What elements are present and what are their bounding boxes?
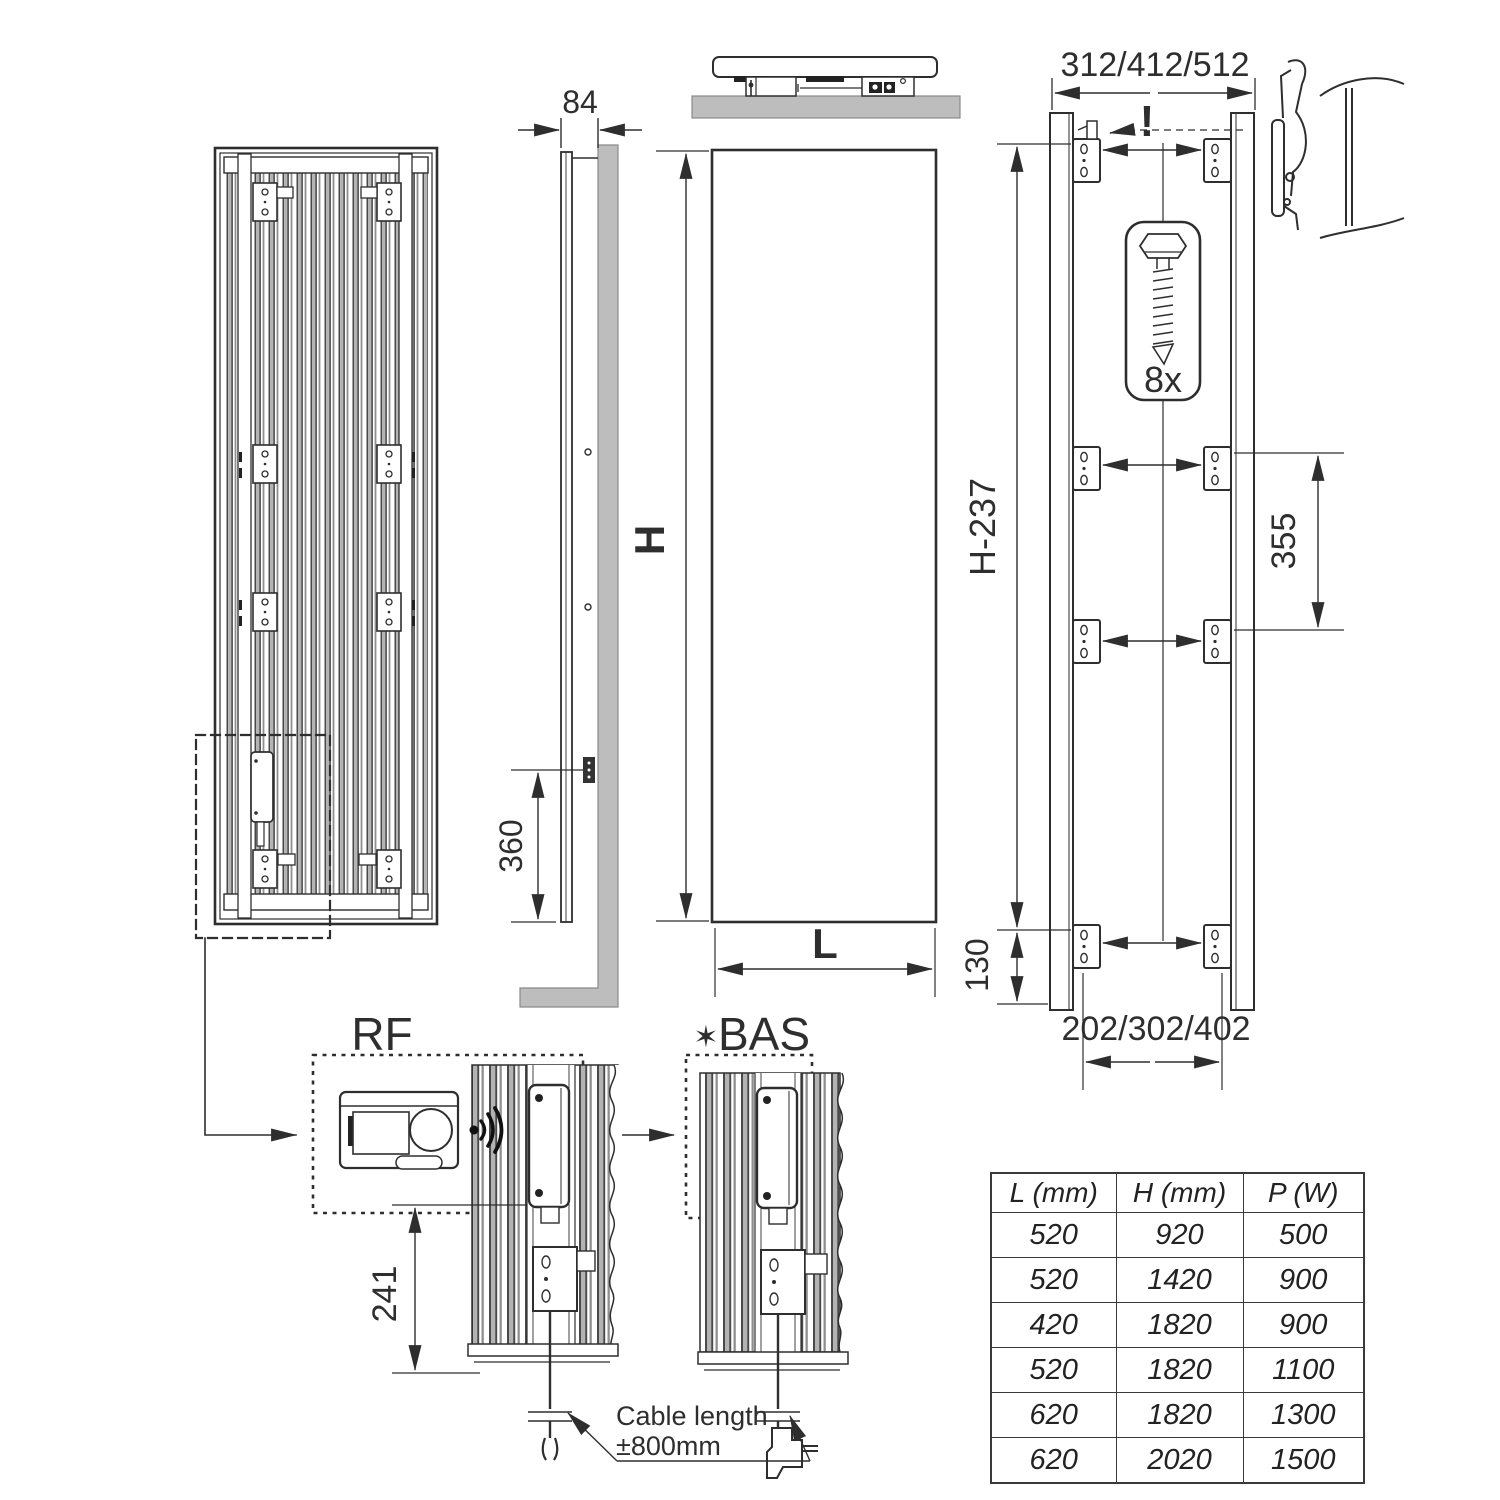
top-plan-view xyxy=(692,57,960,118)
dim-241-label: 241 xyxy=(366,1266,404,1323)
dim-length-label: L xyxy=(812,920,838,967)
cell-h: 2020 xyxy=(1116,1438,1243,1484)
cell-l: 420 xyxy=(991,1303,1116,1348)
dim-H: H xyxy=(626,151,709,921)
dim-inlet-height-label: 360 xyxy=(493,819,529,872)
dim-h237-label: H-237 xyxy=(962,478,1003,576)
cell-l: 520 xyxy=(991,1348,1116,1393)
cell-h: 1820 xyxy=(1116,1303,1243,1348)
table-row: 620 2020 1500 xyxy=(991,1438,1364,1484)
dim-355-label: 355 xyxy=(1265,513,1303,570)
warning-exclamation: ! xyxy=(1140,97,1155,146)
cell-p: 900 xyxy=(1243,1258,1364,1303)
panel-outline-view: H L xyxy=(626,150,936,997)
cell-h: 920 xyxy=(1116,1213,1243,1258)
cable-note-line1: Cable length xyxy=(616,1401,768,1431)
radiator-rear-view xyxy=(196,148,437,1135)
table-row: 420 1820 900 xyxy=(991,1303,1364,1348)
bas-label: BAS xyxy=(718,1008,810,1060)
col-header-length: L (mm) xyxy=(991,1173,1116,1213)
screw-badge: 8x xyxy=(1126,222,1200,400)
cell-p: 1500 xyxy=(1243,1438,1364,1484)
cell-p: 1100 xyxy=(1243,1348,1364,1393)
dim-depth-label: 84 xyxy=(562,84,598,120)
side-view: 84 360 xyxy=(493,84,642,1007)
dim-bottom-span-label: 202/302/402 xyxy=(1061,1010,1250,1048)
dim-130: 130 xyxy=(959,933,1048,1004)
cell-p: 500 xyxy=(1243,1213,1364,1258)
thermostat-display xyxy=(353,1112,409,1154)
dim-130-label: 130 xyxy=(959,938,995,991)
dim-height-label: H xyxy=(626,525,673,555)
cell-h: 1820 xyxy=(1116,1348,1243,1393)
col-header-height: H (mm) xyxy=(1116,1173,1243,1213)
screw-count-label: 8x xyxy=(1144,359,1182,400)
size-table-header-row: L (mm) H (mm) P (W) xyxy=(991,1173,1364,1213)
dim-84: 84 xyxy=(518,84,642,148)
table-row: 520 1420 900 xyxy=(991,1258,1364,1303)
dim-top-span-label: 312/412/512 xyxy=(1060,46,1249,84)
dim-L: L xyxy=(715,920,935,997)
table-row: 620 1820 1300 xyxy=(991,1393,1364,1438)
col-header-power: P (W) xyxy=(1243,1173,1364,1213)
power-plug-icon xyxy=(767,1428,802,1478)
cell-h: 1420 xyxy=(1116,1258,1243,1303)
cell-l: 520 xyxy=(991,1213,1116,1258)
cell-l: 520 xyxy=(991,1258,1116,1303)
bas-star: ✶ xyxy=(693,1021,718,1054)
thermostat-dial xyxy=(410,1109,452,1151)
bracket-clip-sketch xyxy=(1272,60,1404,238)
table-row: 520 1820 1100 xyxy=(991,1348,1364,1393)
cell-p: 900 xyxy=(1243,1303,1364,1348)
cell-l: 620 xyxy=(991,1438,1116,1484)
dim-bottom-span: 202/302/402 xyxy=(1061,973,1250,1090)
cable-note-line2: ±800mm xyxy=(616,1431,721,1461)
size-table: L (mm) H (mm) P (W) 520 920 500 520 1420… xyxy=(990,1172,1365,1484)
rf-detail: RF xyxy=(313,1008,674,1460)
mounting-rails-view: ! 312/412/512 xyxy=(959,46,1404,1090)
rf-label: RF xyxy=(351,1008,412,1060)
table-row: 520 920 500 xyxy=(991,1213,1364,1258)
technical-drawing-page: 84 360 xyxy=(0,0,1500,1500)
cell-h: 1820 xyxy=(1116,1393,1243,1438)
rf-thermostat xyxy=(340,1092,458,1169)
screw-head xyxy=(1140,234,1186,258)
cell-l: 620 xyxy=(991,1393,1116,1438)
cell-p: 1300 xyxy=(1243,1393,1364,1438)
leader-to-rf-detail xyxy=(205,938,296,1135)
